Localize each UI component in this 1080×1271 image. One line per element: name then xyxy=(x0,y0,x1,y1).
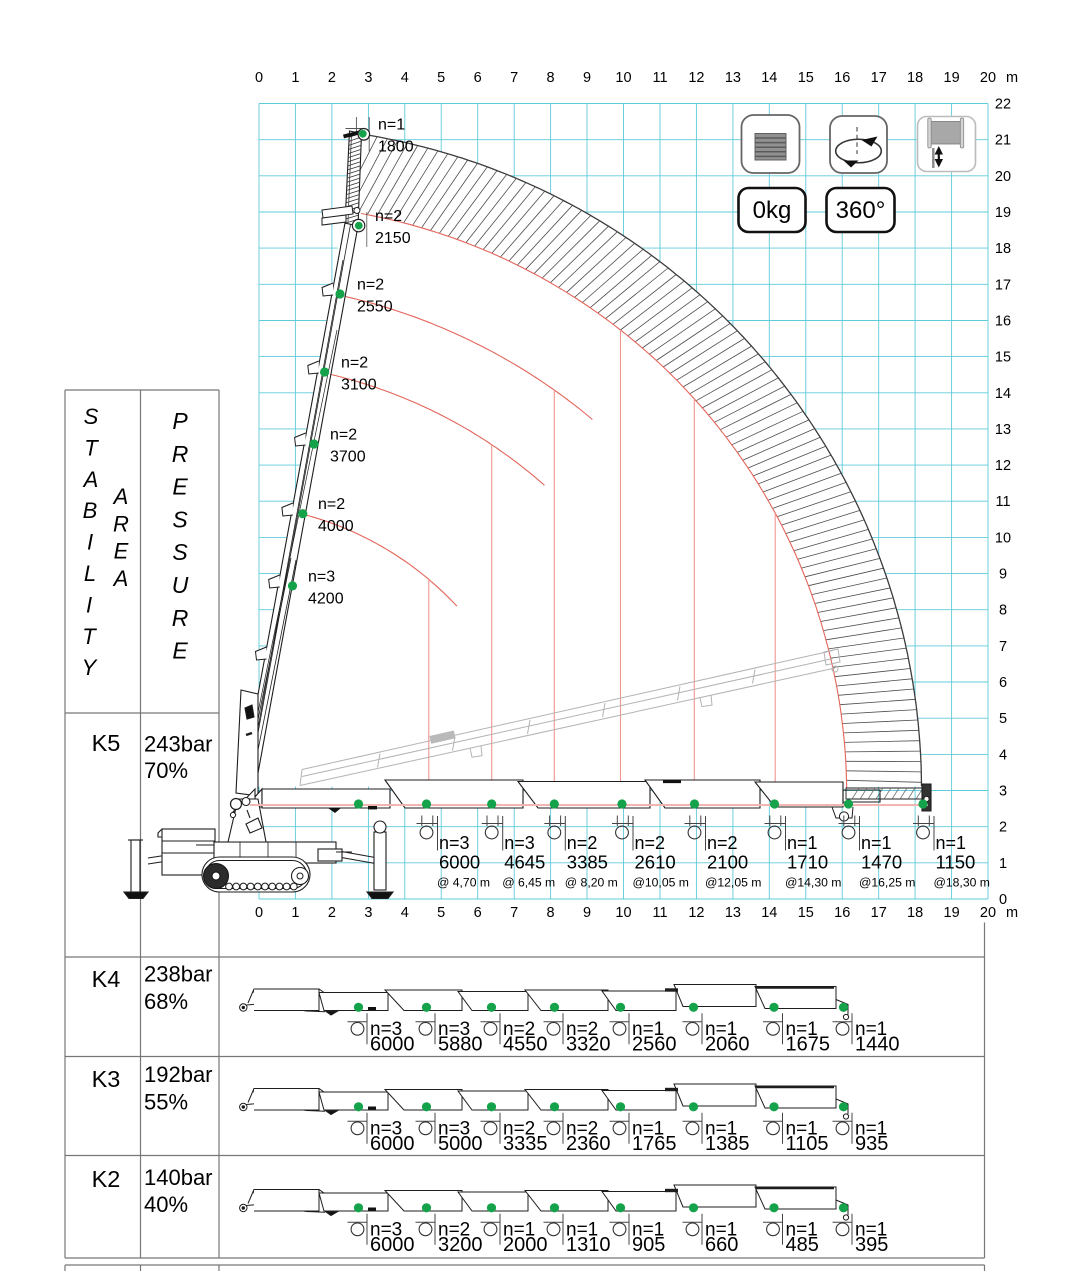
svg-text:17: 17 xyxy=(871,905,887,921)
svg-text:E: E xyxy=(114,539,129,564)
svg-text:9: 9 xyxy=(583,905,591,921)
svg-text:18: 18 xyxy=(907,905,923,921)
svg-text:A: A xyxy=(82,467,99,492)
svg-text:13: 13 xyxy=(995,422,1011,438)
svg-text:5880: 5880 xyxy=(438,1033,483,1055)
svg-text:1: 1 xyxy=(291,905,299,921)
svg-text:18: 18 xyxy=(907,70,923,86)
svg-text:n=2: n=2 xyxy=(567,833,598,853)
svg-text:R: R xyxy=(113,511,129,536)
svg-text:2550: 2550 xyxy=(357,299,393,316)
svg-text:n=3: n=3 xyxy=(439,833,470,853)
svg-text:A: A xyxy=(112,484,129,509)
svg-text:4200: 4200 xyxy=(308,590,344,607)
svg-text:1710: 1710 xyxy=(787,852,828,873)
svg-text:7: 7 xyxy=(510,70,518,86)
svg-text:20: 20 xyxy=(995,169,1011,185)
svg-text:@12,05 m: @12,05 m xyxy=(705,876,761,890)
svg-text:1310: 1310 xyxy=(566,1234,611,1256)
svg-text:1385: 1385 xyxy=(705,1133,750,1155)
svg-text:2: 2 xyxy=(999,820,1007,836)
svg-text:360°: 360° xyxy=(836,197,886,224)
svg-text:S: S xyxy=(84,404,99,429)
svg-text:13: 13 xyxy=(725,905,741,921)
svg-text:n=2: n=2 xyxy=(635,833,666,853)
svg-text:K3: K3 xyxy=(92,1066,121,1092)
svg-text:15: 15 xyxy=(798,70,814,86)
svg-text:21: 21 xyxy=(995,133,1011,149)
svg-text:11: 11 xyxy=(995,494,1010,510)
svg-text:0: 0 xyxy=(255,70,263,86)
svg-text:S: S xyxy=(172,539,188,565)
svg-text:18: 18 xyxy=(995,241,1011,257)
svg-text:40%: 40% xyxy=(144,1192,188,1217)
svg-text:3385: 3385 xyxy=(567,852,608,873)
svg-text:I: I xyxy=(87,530,93,555)
svg-text:n=1: n=1 xyxy=(861,833,892,853)
svg-text:12: 12 xyxy=(688,70,704,86)
svg-text:9: 9 xyxy=(999,567,1007,583)
svg-text:1150: 1150 xyxy=(936,852,976,873)
svg-text:@ 8,20 m: @ 8,20 m xyxy=(565,876,618,890)
svg-text:3: 3 xyxy=(364,70,372,86)
svg-text:1: 1 xyxy=(999,856,1007,872)
svg-text:14: 14 xyxy=(995,386,1011,402)
svg-text:R: R xyxy=(172,605,189,631)
svg-text:n=2: n=2 xyxy=(357,277,384,294)
svg-text:243bar: 243bar xyxy=(144,732,213,757)
svg-text:n=3: n=3 xyxy=(308,568,335,585)
svg-text:6000: 6000 xyxy=(439,852,480,873)
svg-text:A: A xyxy=(112,566,129,591)
svg-text:6000: 6000 xyxy=(370,1033,415,1055)
svg-text:3700: 3700 xyxy=(330,449,366,466)
svg-text:6: 6 xyxy=(999,675,1007,691)
svg-text:0kg: 0kg xyxy=(753,197,792,224)
svg-text:1105: 1105 xyxy=(786,1133,829,1155)
svg-text:1440: 1440 xyxy=(855,1033,900,1055)
svg-text:n=2: n=2 xyxy=(330,427,357,444)
svg-text:3100: 3100 xyxy=(341,377,377,394)
svg-text:3335: 3335 xyxy=(503,1133,548,1155)
svg-text:0: 0 xyxy=(255,905,263,921)
svg-text:5000: 5000 xyxy=(438,1133,483,1155)
svg-text:m: m xyxy=(1006,70,1018,86)
svg-text:4: 4 xyxy=(999,747,1007,763)
svg-text:5: 5 xyxy=(437,905,445,921)
svg-text:L: L xyxy=(84,561,96,586)
svg-text:6000: 6000 xyxy=(370,1234,415,1256)
svg-text:3: 3 xyxy=(364,905,372,921)
svg-text:T: T xyxy=(82,624,97,649)
svg-text:8: 8 xyxy=(999,603,1007,619)
svg-text:E: E xyxy=(172,474,188,500)
svg-text:2150: 2150 xyxy=(375,230,411,247)
svg-text:3320: 3320 xyxy=(566,1033,611,1055)
svg-text:@ 4,70 m: @ 4,70 m xyxy=(437,876,490,890)
svg-text:T: T xyxy=(84,435,99,460)
svg-text:6: 6 xyxy=(474,905,482,921)
svg-text:K5: K5 xyxy=(92,730,121,756)
svg-text:15: 15 xyxy=(798,905,814,921)
svg-text:7: 7 xyxy=(999,639,1007,655)
svg-text:10: 10 xyxy=(615,905,631,921)
svg-text:22: 22 xyxy=(995,97,1011,113)
svg-text:7: 7 xyxy=(510,905,518,921)
svg-text:3: 3 xyxy=(999,784,1007,800)
svg-text:3200: 3200 xyxy=(438,1234,483,1256)
svg-text:2560: 2560 xyxy=(632,1033,677,1055)
svg-text:2: 2 xyxy=(328,70,336,86)
svg-text:1800: 1800 xyxy=(378,138,414,155)
svg-text:2360: 2360 xyxy=(566,1133,611,1155)
svg-text:16: 16 xyxy=(834,905,850,921)
svg-text:485: 485 xyxy=(786,1234,819,1256)
svg-text:6: 6 xyxy=(474,70,482,86)
svg-text:9: 9 xyxy=(583,70,591,86)
svg-text:n=1: n=1 xyxy=(378,116,405,133)
svg-text:5: 5 xyxy=(437,70,445,86)
svg-text:11: 11 xyxy=(652,70,667,86)
svg-text:1: 1 xyxy=(291,70,299,86)
svg-text:4645: 4645 xyxy=(504,852,545,873)
svg-text:n=1: n=1 xyxy=(787,833,818,853)
svg-text:11: 11 xyxy=(652,905,667,921)
svg-text:17: 17 xyxy=(871,70,887,86)
svg-text:660: 660 xyxy=(705,1234,738,1256)
svg-text:20: 20 xyxy=(980,905,996,921)
svg-text:E: E xyxy=(172,638,188,664)
svg-text:68%: 68% xyxy=(144,989,188,1014)
svg-text:0: 0 xyxy=(999,892,1007,908)
svg-text:140bar: 140bar xyxy=(144,1165,213,1190)
svg-text:13: 13 xyxy=(725,70,741,86)
svg-text:@14,30 m: @14,30 m xyxy=(785,876,841,890)
svg-text:14: 14 xyxy=(761,905,777,921)
svg-text:n=3: n=3 xyxy=(504,833,535,853)
svg-text:19: 19 xyxy=(995,205,1011,221)
svg-text:1765: 1765 xyxy=(632,1133,677,1155)
svg-text:55%: 55% xyxy=(144,1090,188,1115)
svg-text:@16,25 m: @16,25 m xyxy=(859,876,915,890)
svg-text:16: 16 xyxy=(834,70,850,86)
svg-text:Y: Y xyxy=(82,655,98,680)
svg-text:19: 19 xyxy=(944,905,960,921)
svg-text:n=1: n=1 xyxy=(936,833,967,853)
svg-text:@18,30 m: @18,30 m xyxy=(934,876,990,890)
svg-text:n=2: n=2 xyxy=(375,208,402,225)
svg-text:2: 2 xyxy=(328,905,336,921)
svg-text:10: 10 xyxy=(995,530,1011,546)
svg-text:4: 4 xyxy=(401,905,409,921)
svg-text:935: 935 xyxy=(855,1133,888,1155)
svg-text:1470: 1470 xyxy=(861,852,902,873)
svg-text:12: 12 xyxy=(688,905,704,921)
svg-text:@ 6,45 m: @ 6,45 m xyxy=(502,876,555,890)
svg-text:U: U xyxy=(172,572,189,598)
svg-text:n=2: n=2 xyxy=(318,496,345,513)
svg-text:P: P xyxy=(172,408,188,434)
svg-text:S: S xyxy=(172,506,188,532)
svg-text:395: 395 xyxy=(855,1234,888,1256)
svg-text:K2: K2 xyxy=(92,1166,121,1192)
svg-text:905: 905 xyxy=(632,1234,665,1256)
svg-text:2000: 2000 xyxy=(503,1234,548,1256)
svg-text:2060: 2060 xyxy=(705,1033,750,1055)
svg-text:5: 5 xyxy=(999,711,1007,727)
svg-text:4550: 4550 xyxy=(503,1033,548,1055)
svg-text:15: 15 xyxy=(995,350,1011,366)
svg-text:17: 17 xyxy=(995,277,1011,293)
svg-text:1675: 1675 xyxy=(786,1033,831,1055)
svg-text:R: R xyxy=(172,441,189,467)
svg-text:6000: 6000 xyxy=(370,1133,415,1155)
svg-text:4000: 4000 xyxy=(318,518,354,535)
svg-text:20: 20 xyxy=(980,70,996,86)
svg-text:K4: K4 xyxy=(92,966,121,992)
svg-text:4: 4 xyxy=(401,70,409,86)
svg-text:@10,05 m: @10,05 m xyxy=(633,876,689,890)
svg-text:14: 14 xyxy=(761,70,777,86)
svg-text:2100: 2100 xyxy=(707,852,748,873)
svg-text:16: 16 xyxy=(995,314,1011,330)
svg-text:n=2: n=2 xyxy=(707,833,738,853)
svg-text:m: m xyxy=(1006,905,1018,921)
svg-text:8: 8 xyxy=(547,70,555,86)
svg-text:12: 12 xyxy=(995,458,1011,474)
svg-text:10: 10 xyxy=(615,70,631,86)
svg-text:n=2: n=2 xyxy=(341,355,368,372)
svg-text:192bar: 192bar xyxy=(144,1062,213,1087)
svg-text:238bar: 238bar xyxy=(144,962,213,987)
svg-text:8: 8 xyxy=(547,905,555,921)
svg-text:70%: 70% xyxy=(144,758,188,783)
svg-text:B: B xyxy=(83,498,98,523)
svg-text:19: 19 xyxy=(944,70,960,86)
svg-text:I: I xyxy=(86,592,92,617)
svg-text:2610: 2610 xyxy=(635,852,676,873)
